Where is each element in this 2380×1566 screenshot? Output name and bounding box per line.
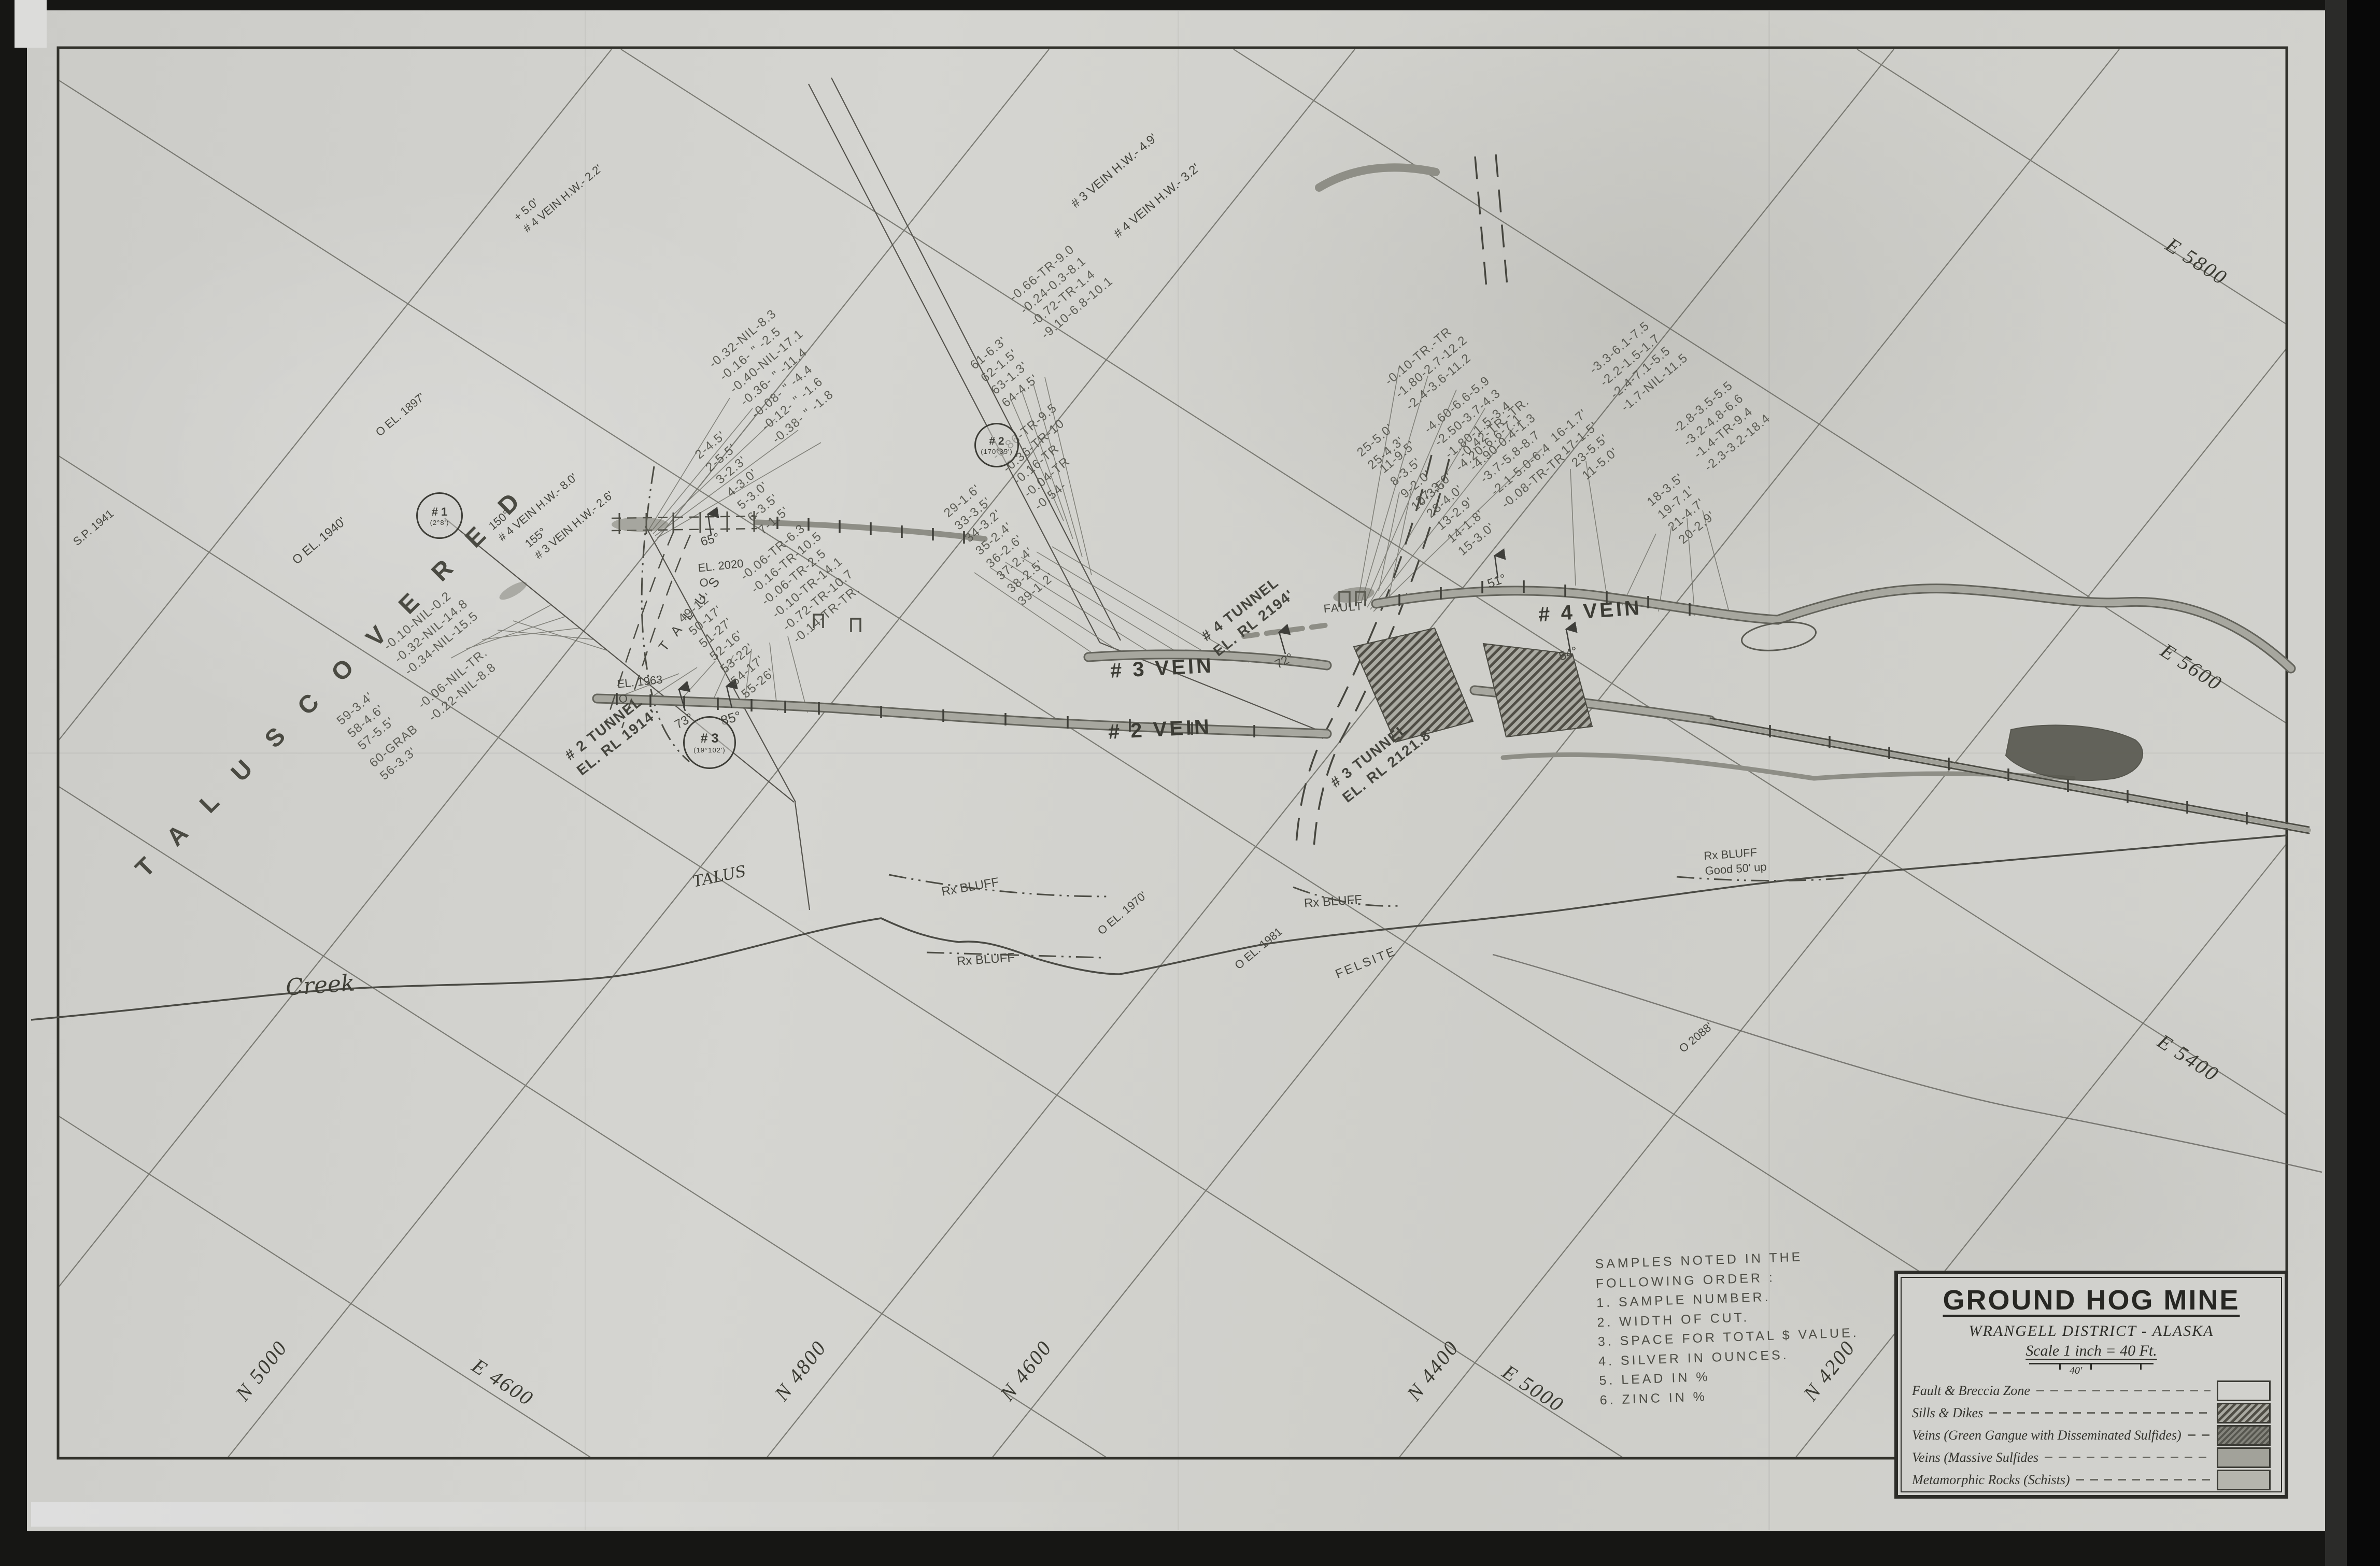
map-title: GROUND HOG MINE <box>1912 1284 2271 1316</box>
shaft-3-label: # 3 <box>701 731 719 746</box>
shaft-2-bearing: (170°35') <box>981 448 1013 455</box>
legend-fault-breccia-swatch <box>2217 1380 2271 1401</box>
scale-bar-tick-left <box>2059 1363 2061 1370</box>
shaft-1: # 1(2°8') <box>416 492 463 539</box>
label-rx-bluff-4: Rx BLUFF Good 50' up <box>1704 844 1767 878</box>
legend-veins-green-gangue-swatch <box>2217 1425 2271 1446</box>
legend-veins-green-gangue-label: Veins (Green Gangue with Disseminated Su… <box>1912 1428 2181 1443</box>
legend-sills-dikes-swatch <box>2217 1403 2271 1423</box>
legend-veins-massive-leader-dashes <box>2045 1457 2211 1458</box>
title-block-inner: GROUND HOG MINE WRANGELL DISTRICT - ALAS… <box>1901 1277 2282 1492</box>
legend-metamorphic-label: Metamorphic Rocks (Schists) <box>1912 1472 2070 1488</box>
photo-background: E 5800E 5600E 5400E 5000E 4600N 5000N 48… <box>0 0 2380 1566</box>
legend-talus-margin-row: Margin of Talus Covered Areas <box>1912 1491 2271 1492</box>
label-vein-2: # 2 VEIN <box>1108 713 1213 746</box>
legend: Fault & Breccia ZoneSills & DikesVeins (… <box>1912 1379 2271 1492</box>
label-vein-3: # 3 VEIN <box>1110 652 1215 685</box>
sampling-notes: SAMPLES NOTED IN THEFOLLOWING ORDER :1. … <box>1595 1245 1880 1411</box>
legend-veins-green-gangue-row: Veins (Green Gangue with Disseminated Su… <box>1912 1424 2271 1446</box>
scale-bar: 40' <box>2029 1363 2154 1375</box>
map-scale-text: Scale 1 inch = 40 Ft. <box>1912 1342 2271 1360</box>
legend-sills-dikes-leader-dashes <box>1989 1412 2211 1414</box>
legend-veins-massive-row: Veins (Massive Sulfides <box>1912 1446 2271 1469</box>
legend-metamorphic-leader-dashes <box>2076 1479 2211 1480</box>
shaft-2: # 2(170°35') <box>974 423 1019 467</box>
shaft-1-bearing: (2°8') <box>430 519 449 526</box>
map-district: WRANGELL DISTRICT - ALASKA <box>1912 1322 2271 1340</box>
legend-veins-massive-swatch <box>2217 1447 2271 1468</box>
legend-sills-dikes-row: Sills & Dikes <box>1912 1402 2271 1424</box>
scale-bar-tick-right <box>2140 1363 2142 1370</box>
label-creek: Creek <box>285 968 356 1003</box>
legend-veins-massive-label: Veins (Massive Sulfides <box>1912 1450 2038 1465</box>
shaft-3-bearing: (19°102') <box>693 746 726 754</box>
legend-fault-breccia-row: Fault & Breccia Zone <box>1912 1379 2271 1402</box>
legend-metamorphic-swatch <box>2217 1470 2271 1490</box>
title-block: GROUND HOG MINE WRANGELL DISTRICT - ALAS… <box>1894 1271 2288 1499</box>
legend-fault-breccia-label: Fault & Breccia Zone <box>1912 1383 2030 1399</box>
legend-fault-breccia-leader-dashes <box>2036 1390 2211 1391</box>
scale-bar-tick-mid <box>2090 1363 2092 1370</box>
shaft-3: # 3(19°102') <box>683 716 736 769</box>
scale-bar-label: 40' <box>2070 1365 2082 1377</box>
legend-sills-dikes-label: Sills & Dikes <box>1912 1405 1983 1421</box>
creek-lines <box>31 835 2322 1172</box>
legend-metamorphic-row: Metamorphic Rocks (Schists) <box>1912 1469 2271 1491</box>
shaft-1-label: # 1 <box>432 505 448 519</box>
label-el1963: EL. 1963 O <box>616 672 665 707</box>
shaft-2-label: # 2 <box>989 435 1004 448</box>
label-fault: FAULT <box>1323 599 1364 616</box>
legend-veins-green-gangue-leader-dashes <box>2188 1434 2211 1436</box>
